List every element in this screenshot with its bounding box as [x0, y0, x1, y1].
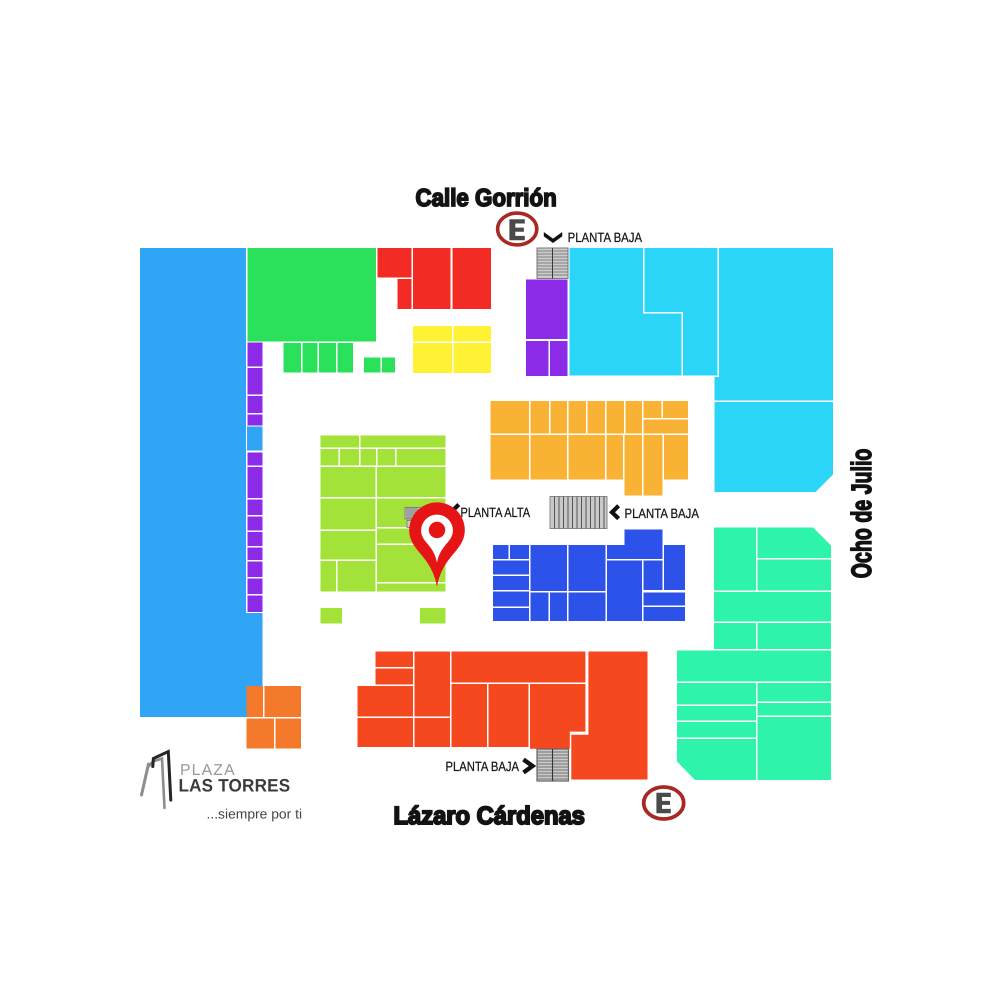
- svg-text:...siempre por ti: ...siempre por ti: [207, 806, 303, 821]
- svg-text:LAS TORRES: LAS TORRES: [179, 775, 291, 795]
- svg-text:PLANTA BAJA: PLANTA BAJA: [625, 506, 699, 521]
- svg-text:PLANTA BAJA: PLANTA BAJA: [568, 230, 642, 245]
- svg-text:PLANTA BAJA: PLANTA BAJA: [446, 759, 520, 774]
- svg-text:Calle Gorrión: Calle Gorrión: [416, 185, 557, 212]
- svg-text:Ocho de Julio: Ocho de Julio: [846, 449, 877, 579]
- svg-text:PLANTA ALTA: PLANTA ALTA: [461, 505, 531, 520]
- svg-text:Lázaro Cárdenas: Lázaro Cárdenas: [394, 802, 585, 830]
